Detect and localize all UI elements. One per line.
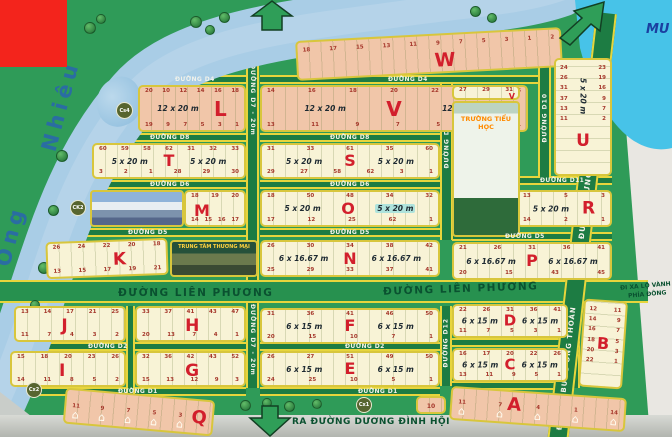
lot-size-label: 6 x 16.67 m — [548, 257, 597, 266]
lot-size-label: 6 x 15 m — [462, 361, 498, 370]
tree-icon — [84, 22, 96, 34]
lot-numbers: 24 26 31 37 13 11 — [560, 63, 568, 124]
street-d5-label: ĐƯỜNG D5 — [128, 229, 168, 236]
mall-photo-caption: TRUNG TÂM THƯƠNG MẠI — [172, 244, 256, 250]
block-b: 12 14 16 18 20 22 11 9 7 5 3 1 B — [578, 299, 628, 390]
block-w-letter: W — [434, 51, 456, 71]
lot-size-label: 6 x 16.67 m — [466, 257, 515, 266]
street-d5-label: ĐƯỜNG D5 — [330, 229, 370, 236]
lot-numbers: 14 2 1 — [523, 218, 605, 224]
block-m: 18 19 20 14 15 16 17 M — [184, 190, 246, 227]
lot-size-label: 12 x 20 m — [304, 104, 345, 113]
house-icon: ⌂ — [458, 405, 466, 416]
lot-number: 10 — [418, 403, 444, 410]
block-t: 60 59 58 62 31 32 33 3 2 1 28 29 30 5 x … — [92, 143, 246, 179]
block-t-letter: T — [164, 153, 175, 169]
lot-numbers: 20 15 10 7 1 — [267, 335, 433, 341]
street-d4-label: ĐƯỜNG D4 — [175, 76, 215, 83]
lot-size-label: 6 x 15 m — [378, 365, 414, 374]
block-l: 20 10 12 14 16 18 19 9 7 5 3 1 12 x 20 m… — [138, 85, 246, 132]
lot-size-label: 6 x 16.67 m — [372, 254, 421, 263]
tree-icon — [262, 398, 272, 408]
block-k: 26 24 22 20 18 13 15 17 19 21 K — [45, 238, 168, 279]
block-u-letter: U — [576, 133, 590, 150]
lot-size-label: 5 x 20 m — [375, 204, 415, 213]
lot-numbers: 27 29 31 — [459, 88, 513, 94]
street-d2-label: ĐƯỜNG D2 — [345, 343, 385, 350]
lot-numbers: 20 10 12 14 16 18 — [145, 89, 239, 95]
block-d: 22 26 31 36 41 11 7 5 3 1 6 x 15 m D 6 x… — [452, 304, 568, 338]
block-g-letter: G — [185, 363, 199, 380]
lot-size-label: 5 x 20 m — [286, 157, 322, 166]
lot-size-label: 6 x 16.67 m — [279, 254, 328, 263]
house-icon: ⌂ — [176, 418, 184, 430]
street-d11-label: ĐƯỜNG D11 — [540, 177, 584, 184]
block-lot10: 10 — [416, 396, 446, 414]
redaction-box — [0, 0, 67, 67]
lot-size-label: 5 x 20 m — [285, 204, 321, 213]
block-e-letter: E — [345, 361, 356, 377]
lot-size-label: 5 x 20 m — [579, 78, 588, 114]
lot-numbers: 25 29 33 37 41 — [267, 268, 433, 274]
block-u: 24 26 31 37 13 11 23 19 16 9 7 2 5 x 20 … — [554, 58, 612, 176]
house-icon: ⌂ — [98, 411, 106, 423]
block-p: 21 26 31 36 41 20 15 43 45 6 x 16.67 m P… — [452, 242, 612, 280]
villa-lot: 1⌂ — [571, 408, 579, 425]
block-v2-letter: V — [509, 93, 515, 101]
exit-south-label: RA ĐƯỜNG DƯƠNG ĐÌNH HỘI — [292, 417, 450, 427]
block-e: 26 27 51 49 50 24 25 10 5 1 6 x 15 m E 6… — [260, 351, 440, 387]
block-i-letter: I — [59, 363, 65, 380]
lot-numbers: 32 36 42 43 52 — [142, 355, 239, 361]
lot-numbers: 13 15 17 19 21 — [53, 266, 161, 275]
school-photo-caption: TRƯỜNG TIỂU HỌC — [454, 115, 518, 131]
tree-icon — [470, 6, 481, 17]
block-g: 32 36 42 43 52 15 13 12 9 3 G — [135, 351, 246, 387]
house-icon: ⌂ — [150, 416, 158, 428]
street-d8-label: ĐƯỜNG D8 — [330, 134, 370, 141]
house-icon: ⌂ — [496, 408, 504, 419]
block-c-letter: C — [504, 358, 515, 373]
block-a-letter: A — [507, 396, 522, 415]
lot-size-label: 6 x 15 m — [378, 322, 414, 331]
lot-numbers: 26 24 22 20 18 — [53, 242, 161, 251]
tree-icon — [96, 14, 106, 24]
marker-ck2: CK2 — [70, 200, 86, 216]
block-s: 31 33 61 35 60 29 27 58 62 3 1 5 x 20 m … — [260, 143, 440, 179]
street-d6-label: ĐƯỜNG D6 — [330, 181, 370, 188]
tree-icon — [205, 25, 215, 35]
block-n-letter: N — [343, 251, 356, 267]
block-s-letter: S — [344, 153, 356, 169]
block-d-letter: D — [504, 314, 516, 329]
block-i: 15 18 20 23 26 14 11 8 5 2 I — [10, 351, 126, 387]
villa-lot: 14⌂ — [609, 411, 618, 428]
street-d1-label: ĐƯỜNG D1 — [118, 388, 158, 395]
lot-numbers: 18 19 20 — [191, 194, 239, 200]
lot-size-label: 6 x 15 m — [286, 322, 322, 331]
lot-numbers: 11 9 7 5 3 1 — [610, 306, 622, 367]
lot-numbers: 12 14 16 18 20 22 — [586, 304, 598, 365]
lot-numbers: 33 37 41 43 47 — [142, 310, 239, 316]
block-v2: 27 29 31 V — [452, 85, 520, 100]
watermark-text: MU — [646, 22, 670, 37]
block-f-letter: F — [345, 318, 356, 334]
tree-icon — [312, 399, 322, 409]
villa-lot: 9⌂ — [98, 406, 106, 423]
block-o-letter: O — [341, 201, 355, 217]
house-icon: ⌂ — [534, 411, 542, 422]
tree-icon — [240, 400, 251, 411]
lot-size-label: 6 x 15 m — [462, 317, 498, 326]
lot-numbers: 13 14 17 21 25 — [21, 310, 119, 316]
lot-numbers: 18 17 15 13 11 9 7 5 3 1 2 — [303, 35, 555, 54]
street-lien-phuong — [0, 280, 648, 303]
lot-size-label: 6 x 15 m — [522, 361, 558, 370]
block-n: 26 30 34 38 42 25 29 33 37 41 6 x 16.67 … — [260, 240, 440, 277]
house-icon: ⌂ — [571, 413, 579, 424]
marker-cx2: Cx2 — [26, 382, 42, 398]
tree-icon — [48, 205, 59, 216]
lot-numbers: 15 18 20 23 26 — [17, 355, 119, 361]
block-q-letter: Q — [191, 409, 208, 428]
street-d1-label: ĐƯỜNG D1 — [358, 388, 398, 395]
lot-numbers: 19 9 7 5 3 1 — [145, 123, 239, 129]
block-k-letter: K — [113, 251, 127, 268]
villa-lot: 11⌂ — [457, 400, 466, 417]
house-icon: ⌂ — [71, 409, 79, 421]
villa-lot: 7⌂ — [496, 403, 504, 420]
street-d5-label: ĐƯỜNG D5 — [505, 233, 545, 240]
block-j-letter: J — [61, 318, 67, 335]
block-p-letter: P — [526, 253, 538, 269]
villa-lot: 11⌂ — [71, 404, 80, 421]
land-plot-map: Nhiêu Ông Sông MU Cs4 ĐƯỜNG D7 - 20m ĐƯỜ… — [0, 0, 672, 437]
villa-lot: 7⌂ — [124, 408, 132, 425]
block-o: 18 50 48 34 32 17 12 25 62 1 5 x 20 m O … — [260, 190, 440, 227]
street-d2-label: ĐƯỜNG D2 — [88, 343, 128, 350]
block-r-letter: R — [582, 200, 595, 217]
lot-size-label: 5 x 20 m — [112, 157, 148, 166]
tree-icon — [284, 401, 295, 412]
block-m-letter: M — [194, 203, 210, 219]
street-lien-phuong-label: ĐƯỜNG LIÊN PHƯƠNG — [118, 287, 273, 299]
marker-cx1: Cx1 — [356, 397, 372, 413]
market-photo — [90, 190, 184, 227]
block-r: 13 5 3 14 2 1 5 x 20 m R — [516, 190, 612, 227]
block-f: 31 36 41 46 50 20 15 10 7 1 6 x 15 m F 6… — [260, 308, 440, 344]
marker-cs4: Cs4 — [116, 102, 133, 119]
lot-size-label: 6 x 15 m — [286, 365, 322, 374]
villa-lot: 3⌂ — [176, 413, 184, 430]
lot-size-label: 6 x 15 m — [522, 317, 558, 326]
mall-photo: TRUNG TÂM THƯƠNG MẠI — [170, 240, 258, 277]
tree-icon — [56, 150, 68, 162]
lot-numbers: 20 15 43 45 — [459, 271, 605, 277]
block-c: 16 17 20 22 26 13 11 9 5 1 6 x 15 m C 6 … — [452, 348, 568, 382]
block-h-letter: H — [185, 318, 199, 335]
house-icon: ⌂ — [610, 416, 618, 427]
lot-numbers: 11 7 4 3 2 — [21, 333, 119, 339]
lot-size-label: 5 x 20 m — [190, 157, 226, 166]
lot-size-label: 5 x 20 m — [533, 204, 569, 213]
lot-numbers: 17 12 25 62 1 — [267, 218, 433, 224]
block-l-letter: L — [214, 99, 227, 119]
lot-numbers: 24 25 10 5 1 — [267, 378, 433, 384]
school-photo: TRƯỜNG TIỂU HỌC — [452, 101, 520, 237]
block-j: 13 14 17 21 25 11 7 4 3 2 J — [14, 306, 126, 342]
street-d4-label: ĐƯỜNG D4 — [388, 76, 428, 83]
lot-numbers: 29 27 58 62 3 1 — [267, 170, 433, 176]
lot-numbers: 3 2 1 28 29 30 — [99, 170, 239, 176]
tree-icon — [190, 16, 202, 28]
tree-icon — [487, 13, 497, 23]
block-b-letter: B — [596, 336, 609, 353]
block-v-letter: V — [386, 99, 401, 119]
villa-lot: 4⌂ — [534, 405, 542, 422]
block-h: 33 37 41 43 47 20 13 7 4 1 H — [135, 306, 246, 342]
villa-lot: 5⌂ — [150, 411, 158, 428]
street-d6-label: ĐƯỜNG D6 — [150, 181, 190, 188]
lot-size-label: 12 x 20 m — [157, 104, 198, 113]
lot-size-label: 5 x 20 m — [378, 157, 414, 166]
tree-icon — [219, 12, 230, 23]
house-icon: ⌂ — [124, 414, 132, 426]
street-d8-label: ĐƯỜNG D8 — [150, 134, 190, 141]
lot-numbers: 23 19 16 9 7 2 — [598, 63, 606, 124]
